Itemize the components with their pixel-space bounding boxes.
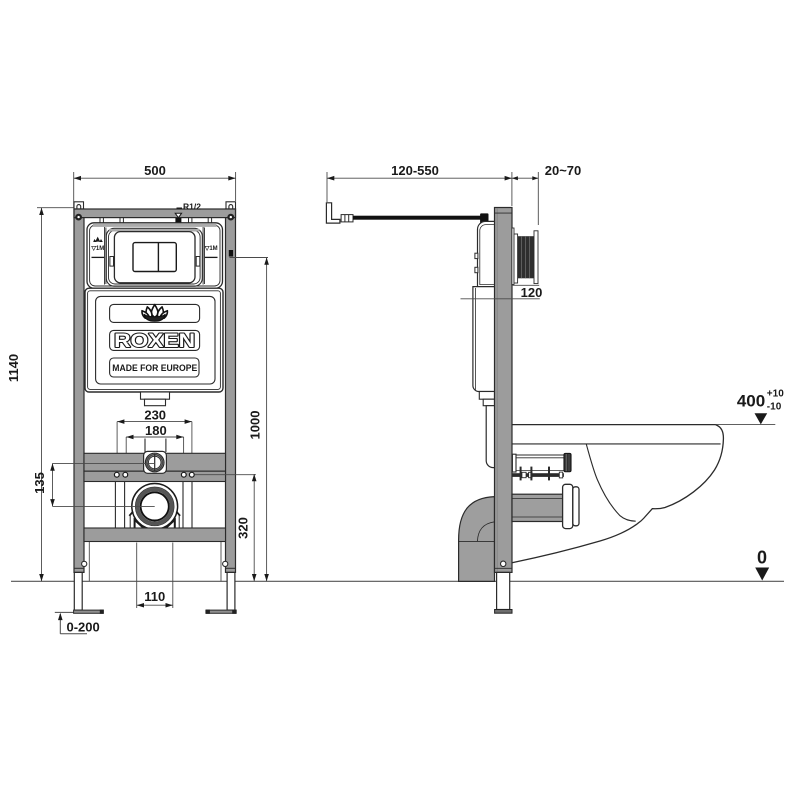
svg-text:MADE FOR EUROPE: MADE FOR EUROPE: [112, 363, 198, 374]
svg-text:1140: 1140: [6, 354, 21, 382]
svg-text:0: 0: [757, 548, 767, 568]
svg-text:+10: +10: [767, 388, 784, 399]
svg-text:▽1M: ▽1M: [204, 246, 218, 252]
svg-text:20~70: 20~70: [545, 163, 582, 178]
svg-text:135: 135: [32, 472, 47, 494]
svg-text:ROXEN: ROXEN: [114, 330, 195, 352]
svg-text:-10: -10: [767, 402, 782, 413]
svg-text:1000: 1000: [247, 411, 262, 440]
svg-text:230: 230: [144, 407, 166, 422]
svg-text:R1/2: R1/2: [183, 202, 201, 212]
svg-text:120: 120: [521, 285, 543, 300]
svg-text:▽1M: ▽1M: [90, 246, 104, 252]
svg-text:0-200: 0-200: [67, 619, 100, 634]
svg-text:400: 400: [737, 392, 765, 411]
svg-text:120-550: 120-550: [391, 163, 439, 178]
svg-text:500: 500: [144, 163, 166, 178]
svg-text:110: 110: [144, 589, 165, 604]
svg-text:180: 180: [145, 423, 167, 438]
svg-text:320: 320: [236, 517, 251, 539]
